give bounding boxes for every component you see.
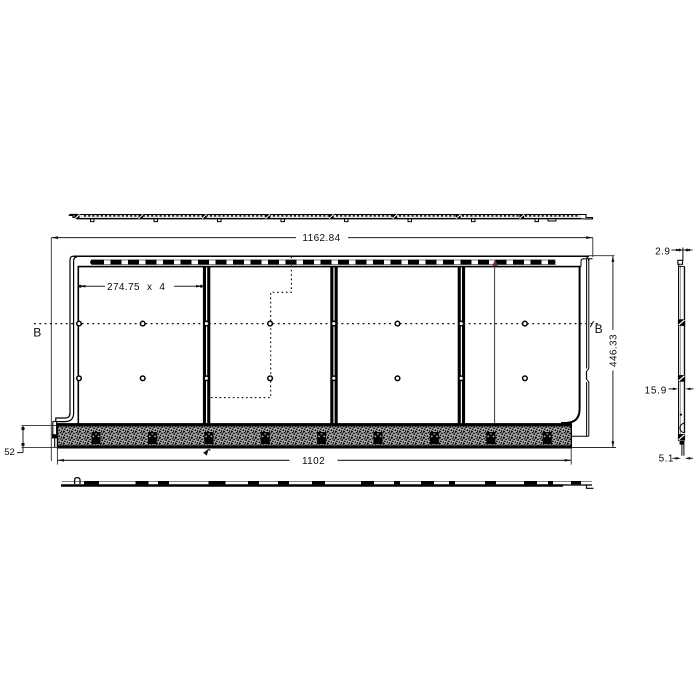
svg-text:2.9: 2.9 <box>655 246 670 257</box>
svg-text:B: B <box>595 322 603 336</box>
svg-text:446.33: 446.33 <box>608 334 619 367</box>
svg-text:15.9: 15.9 <box>644 385 667 396</box>
svg-text:1102: 1102 <box>302 456 325 467</box>
svg-text:B: B <box>33 325 41 339</box>
svg-text:1162.84: 1162.84 <box>302 233 340 244</box>
svg-text:5.1: 5.1 <box>659 454 674 465</box>
svg-text:52: 52 <box>4 447 15 458</box>
